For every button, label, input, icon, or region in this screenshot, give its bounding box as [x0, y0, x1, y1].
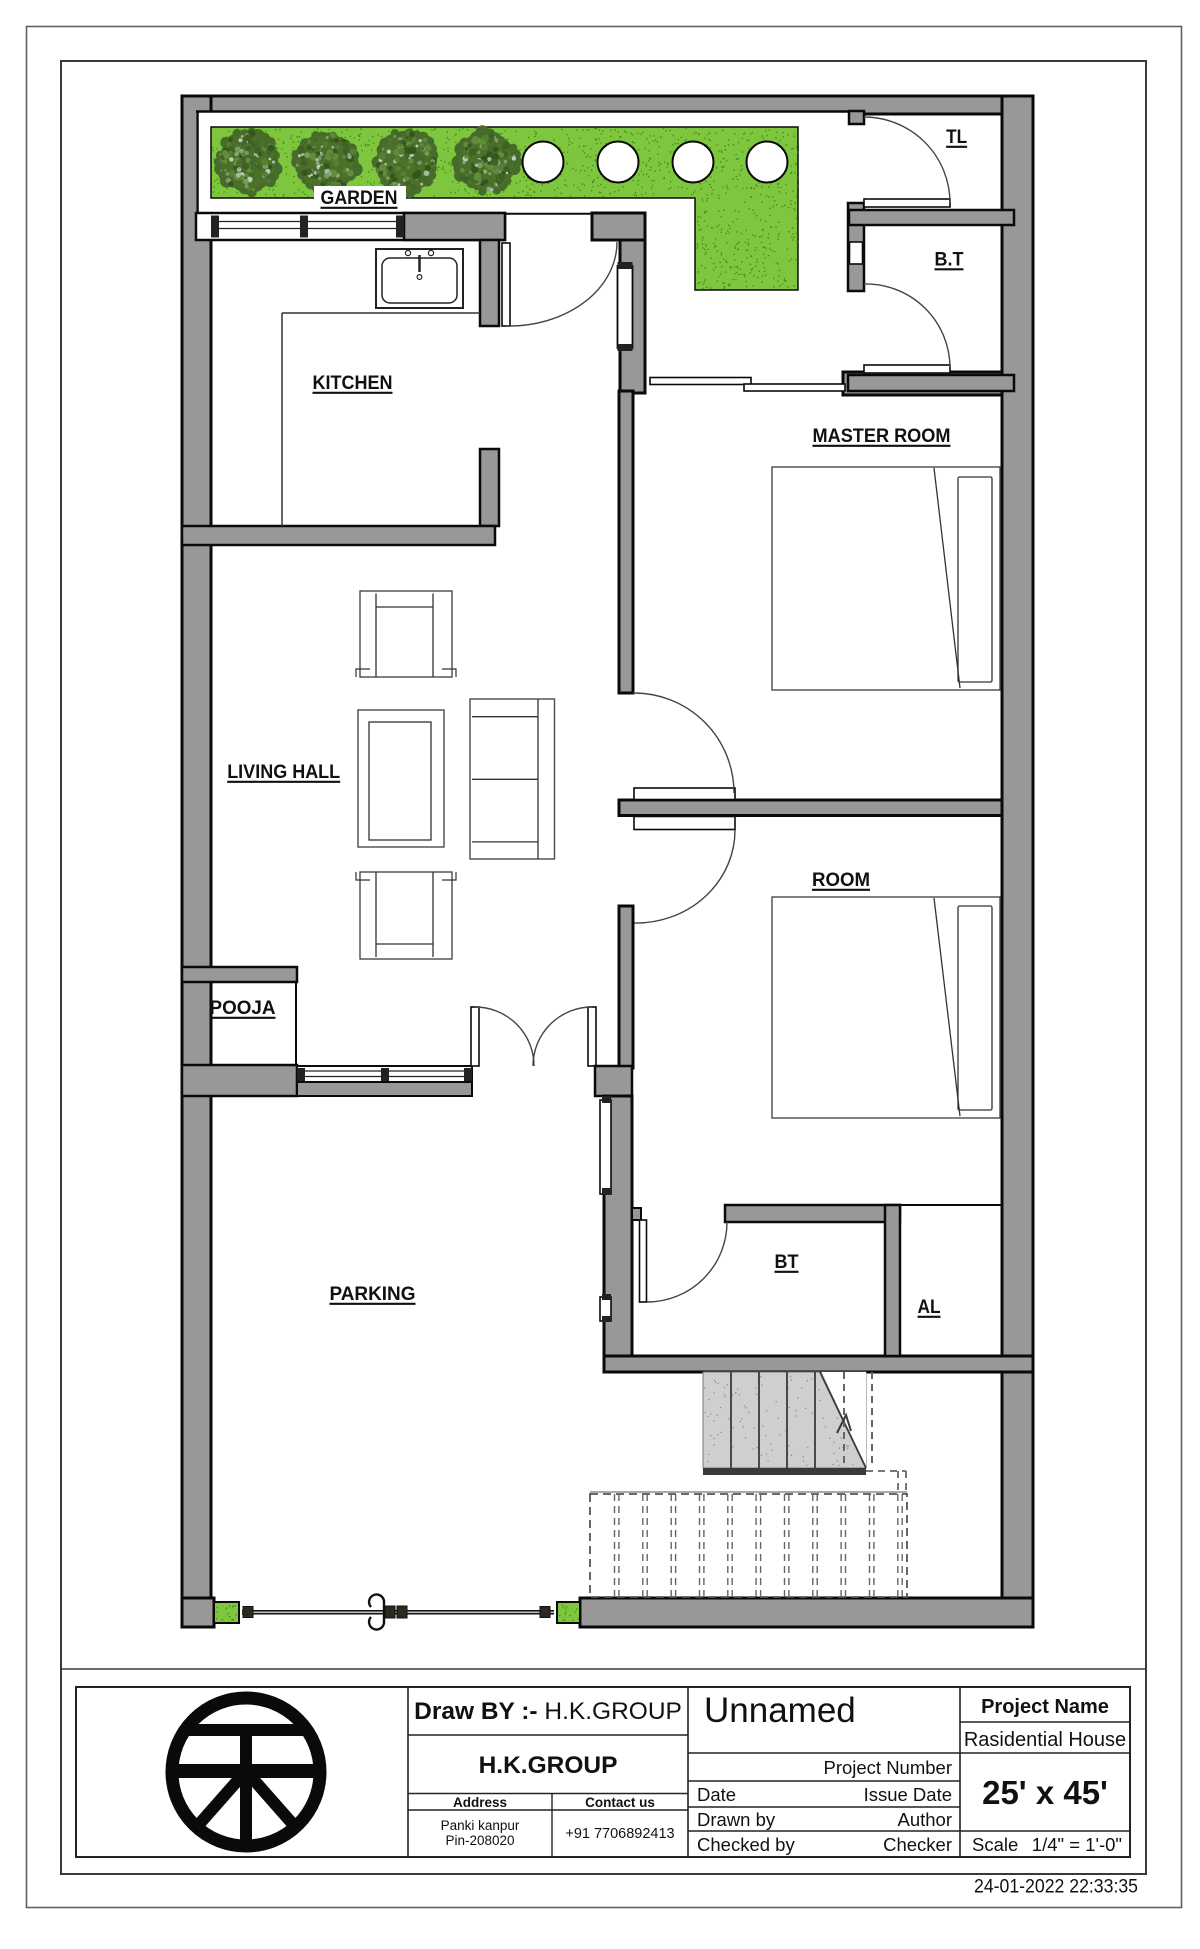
svg-text:Project Number: Project Number	[823, 1757, 952, 1778]
svg-text:Author: Author	[897, 1809, 952, 1830]
svg-text:MASTER ROOM: MASTER ROOM	[813, 425, 951, 447]
svg-text:POOJA: POOJA	[210, 997, 276, 1019]
svg-text:Project Name: Project Name	[981, 1696, 1109, 1718]
svg-text:Pin-208020: Pin-208020	[445, 1833, 514, 1848]
svg-text:TL: TL	[946, 126, 967, 148]
svg-text:PARKING: PARKING	[330, 1283, 416, 1305]
svg-text:LIVING HALL: LIVING HALL	[227, 761, 340, 783]
svg-text:AL: AL	[918, 1296, 941, 1318]
svg-text:Contact us: Contact us	[585, 1795, 655, 1810]
svg-text:Address: Address	[453, 1795, 507, 1810]
svg-text:ROOM: ROOM	[812, 869, 870, 891]
svg-text:GARDEN: GARDEN	[321, 187, 398, 209]
svg-text:B.T: B.T	[935, 249, 964, 271]
svg-text:Date: Date	[697, 1784, 736, 1805]
svg-text:Draw BY :- H.K.GROUP: Draw BY :- H.K.GROUP	[414, 1698, 682, 1725]
svg-text:Unnamed: Unnamed	[704, 1691, 856, 1730]
svg-text:1/4" = 1'-0": 1/4" = 1'-0"	[1032, 1834, 1122, 1855]
svg-text:Scale: Scale	[972, 1834, 1018, 1855]
svg-text:BT: BT	[775, 1251, 799, 1273]
svg-text:KITCHEN: KITCHEN	[313, 372, 393, 394]
svg-text:Checked by: Checked by	[697, 1834, 795, 1855]
svg-text:Checker: Checker	[883, 1834, 952, 1855]
svg-text:+91 7706892413: +91 7706892413	[565, 1826, 674, 1842]
svg-text:Drawn by: Drawn by	[697, 1809, 776, 1830]
svg-text:25' x 45': 25' x 45'	[982, 1774, 1108, 1811]
svg-text:Panki kanpur: Panki kanpur	[441, 1818, 520, 1833]
svg-text:Rasidential House: Rasidential House	[964, 1729, 1126, 1751]
svg-text:24-01-2022 22:33:35: 24-01-2022 22:33:35	[974, 1876, 1138, 1898]
svg-text:Issue Date: Issue Date	[864, 1784, 952, 1805]
svg-text:H.K.GROUP: H.K.GROUP	[479, 1752, 618, 1779]
